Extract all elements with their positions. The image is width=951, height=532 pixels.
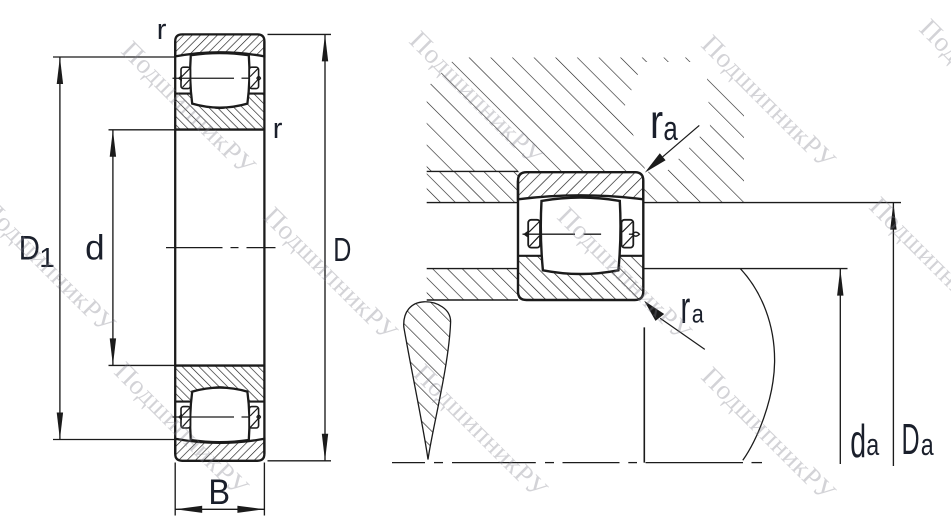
svg-text:r: r	[650, 96, 663, 150]
svg-text:r: r	[273, 113, 283, 145]
svg-text:a: a	[866, 427, 880, 462]
svg-text:d: d	[85, 229, 104, 268]
svg-text:a: a	[663, 111, 678, 148]
svg-text:d: d	[850, 416, 866, 468]
svg-text:a: a	[921, 427, 935, 462]
svg-text:D: D	[902, 415, 920, 464]
svg-text:r: r	[157, 14, 167, 46]
